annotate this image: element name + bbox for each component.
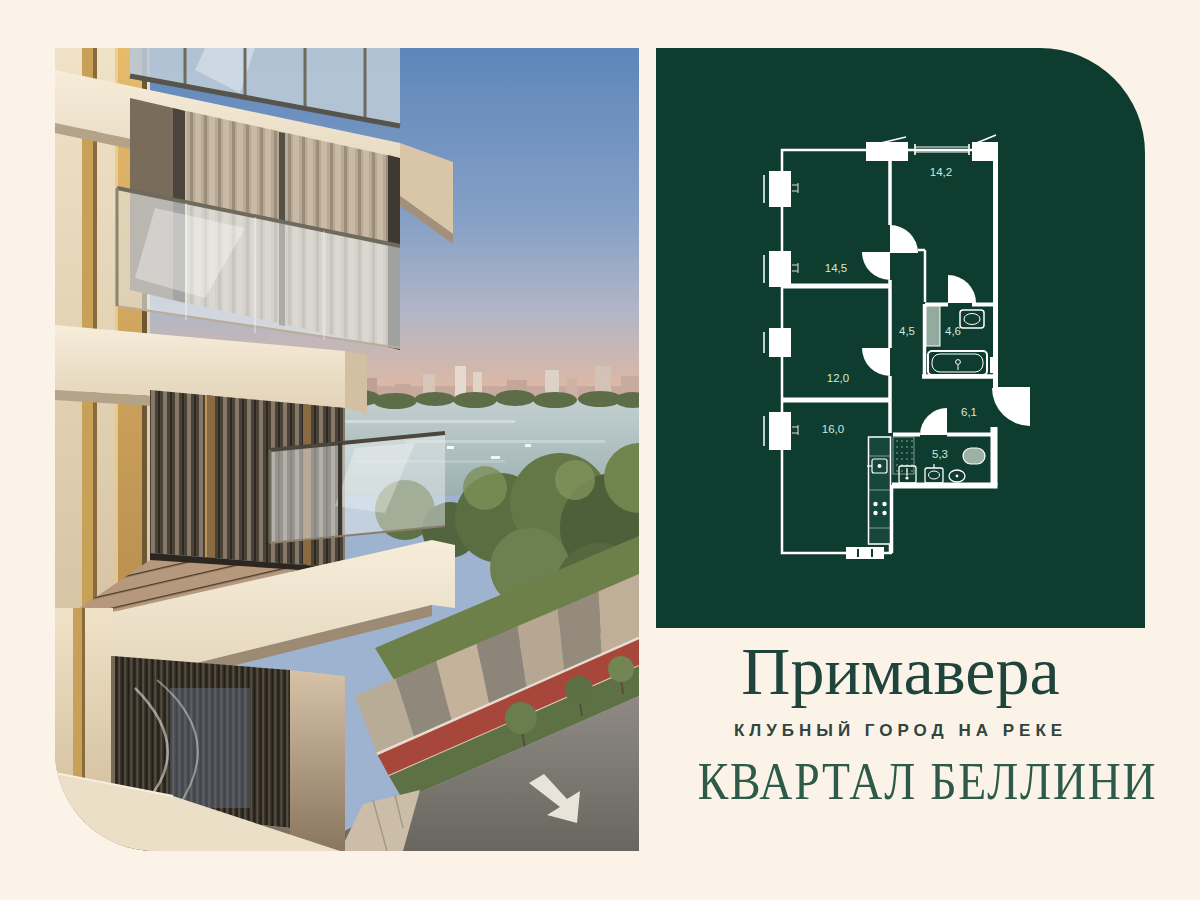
outer-walls	[782, 150, 1030, 553]
bathroom-fixtures	[926, 306, 998, 375]
room-label: 5,3	[932, 448, 948, 460]
room-label: 12,0	[827, 372, 849, 384]
room-label: 14,2	[930, 166, 952, 178]
room-label: 6,1	[961, 406, 977, 418]
terrace-glass-balustrade	[270, 433, 445, 543]
building-photo	[55, 48, 639, 851]
room-label: 4,6	[945, 325, 961, 337]
room-label: 16,0	[822, 423, 844, 435]
floorplan-panel: 14,2 14,5 4,5 4,6 12,0 6,1 16,0 5,3	[656, 48, 1145, 628]
entry-door-arc	[992, 388, 1030, 426]
kitchen-counter	[867, 437, 891, 544]
project-title: Примавера	[656, 636, 1145, 707]
floor-plan: 14,2 14,5 4,5 4,6 12,0 6,1 16,0 5,3	[755, 130, 1040, 565]
radiator-marks	[792, 183, 798, 435]
project-tagline: КЛУБНЫЙ ГОРОД НА РЕКЕ	[656, 721, 1145, 741]
quarter-name: КВАРТАЛ БЕЛЛИНИ	[675, 752, 1181, 811]
room-label: 4,5	[899, 325, 915, 337]
room-label: 14,5	[825, 262, 847, 274]
wc-fixtures	[893, 437, 985, 483]
ad-card: 14,2 14,5 4,5 4,6 12,0 6,1 16,0 5,3 Прим…	[0, 0, 1200, 900]
room-labels: 14,2 14,5 4,5 4,6 12,0 6,1 16,0 5,3	[822, 166, 977, 460]
